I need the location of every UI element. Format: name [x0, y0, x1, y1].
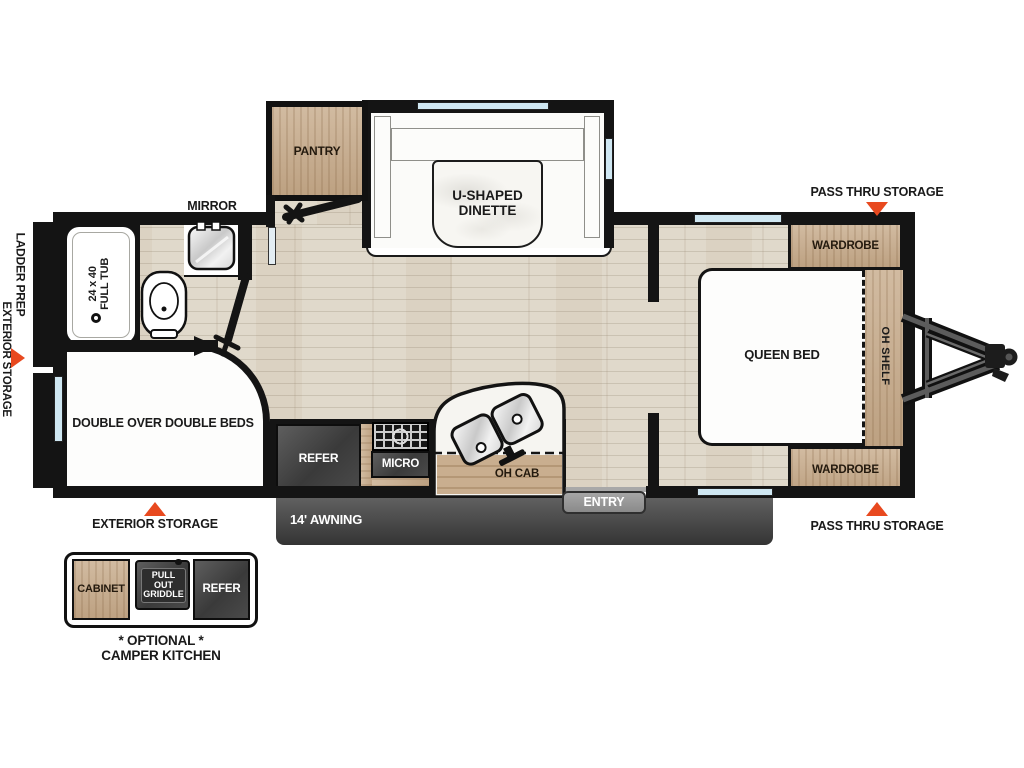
camper-kitchen-refer-label: REFER: [203, 583, 241, 595]
camper-kitchen-cabinet: CABINET: [72, 559, 130, 620]
rv-floorplan: U-SHAPED DINETTE PANTRY REFER MICRO DOUB…: [0, 0, 1024, 768]
toilet-icon: [142, 272, 186, 338]
camper-kitchen-title: CAMPER KITCHEN: [61, 649, 261, 664]
entry-tab: ENTRY: [562, 491, 646, 514]
awning: 14' AWNING: [276, 498, 773, 545]
pass-thru-storage-label-bottom: PASS THRU STORAGE: [792, 520, 962, 534]
mirror-label: MIRROR: [168, 200, 256, 214]
hitch-icon: [903, 316, 1018, 400]
exterior-storage-label-bottom: EXTERIOR STORAGE: [65, 518, 245, 532]
pass-thru-storage-label-top: PASS THRU STORAGE: [792, 186, 962, 200]
griddle-panel: PULL OUT GRIDDLE: [141, 568, 186, 603]
storage-triangle-top: [866, 202, 888, 216]
storage-triangle-bottom: [866, 502, 888, 516]
ladder-prep-label: LADDER PREP: [14, 214, 27, 334]
pantry-door-icon: [286, 199, 358, 222]
pull-out-griddle: PULL OUT GRIDDLE: [135, 560, 190, 610]
oh-cab-label: OH CAB: [477, 468, 557, 480]
camper-kitchen-refer: REFER: [193, 559, 250, 620]
bath-sink-icon: [189, 222, 234, 269]
storage-triangle-left: [11, 348, 25, 368]
storage-triangle-bottom-left: [144, 502, 166, 516]
griddle-knob: [175, 559, 182, 565]
griddle-label-line2: GRIDDLE: [143, 589, 184, 599]
griddle-label-line1: PULL OUT: [152, 570, 176, 590]
optional-label: * OPTIONAL *: [61, 634, 261, 649]
entry-label: ENTRY: [584, 496, 625, 510]
camper-kitchen-cabinet-label: CABINET: [77, 584, 125, 596]
awning-label: 14' AWNING: [290, 513, 362, 527]
